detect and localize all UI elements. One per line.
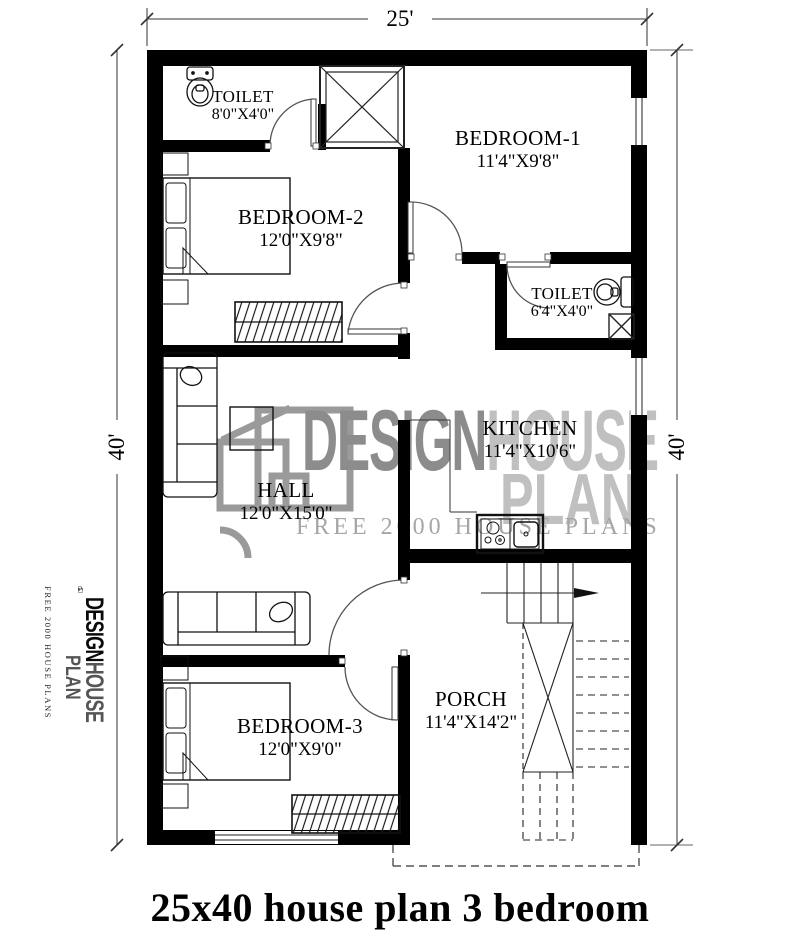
dimension-width-top: 25' [372, 6, 428, 32]
room-label-toilet-2: TOILET 6'4"X4'0" [462, 284, 662, 322]
room-name: TOILET [462, 284, 662, 303]
page-title: 25x40 house plan 3 bedroom [0, 884, 800, 931]
room-size: 12'0"X9'0" [200, 739, 400, 761]
room-label-toilet-1: TOILET 8'0"X4'0" [143, 87, 343, 125]
room-name: KITCHEN [430, 417, 630, 441]
room-name: BEDROOM-1 [418, 127, 618, 151]
wardrobe-icon [235, 302, 342, 342]
room-name: BEDROOM-2 [201, 206, 401, 230]
room-label-bedroom-3: BEDROOM-3 12'0"X9'0" [200, 715, 400, 761]
room-size: 8'0"X4'0" [143, 106, 343, 124]
logo-tagline: FREE 2000 HOUSE PLANS [43, 586, 53, 771]
porch-outline [393, 845, 639, 866]
logo-word-house: HOUSE [80, 662, 108, 722]
dimension-height-left: 40' [104, 425, 130, 469]
room-name: HALL [186, 479, 386, 503]
coffee-table-icon [230, 407, 273, 450]
room-label-hall: HALL 12'0"X15'0" [186, 479, 386, 525]
room-size: 11'4"X9'8" [418, 151, 618, 173]
room-size: 12'0"X15'0" [186, 503, 386, 525]
room-label-kitchen: KITCHEN 11'4"X10'6" [430, 417, 630, 463]
wardrobe-icon [292, 795, 400, 833]
room-label-porch: PORCH 11'4"X14'2" [371, 688, 571, 734]
room-name: PORCH [371, 688, 571, 712]
floor-plan-canvas: DESIGNHOUSE PLAN FREE 2000 HOUSE PLANS [0, 0, 800, 950]
room-size: 6'4"X4'0" [462, 303, 662, 321]
room-label-bedroom-2: BEDROOM-2 12'0"X9'8" [201, 206, 401, 252]
room-size: 11'4"X10'6" [430, 441, 630, 463]
sofa-icon [163, 592, 310, 645]
room-name: BEDROOM-3 [200, 715, 400, 739]
room-label-bedroom-1: BEDROOM-1 11'4"X9'8" [418, 127, 618, 173]
room-name: TOILET [143, 87, 343, 106]
brand-logo: DESIGNHOUSE PLAN FREE 2000 HOUSE PLANS [43, 586, 105, 771]
sofa-icon [163, 353, 217, 497]
room-size: 11'4"X14'2" [371, 712, 571, 734]
dimension-height-right: 40' [664, 425, 690, 469]
floor-plan-drawing [0, 0, 800, 950]
kitchen-sink-icon [477, 515, 543, 553]
logo-word-plan: PLAN [63, 655, 82, 745]
brand-house-icon [55, 586, 105, 593]
logo-word-design: DESIGN [80, 597, 108, 662]
room-size: 12'0"X9'8" [201, 230, 401, 252]
